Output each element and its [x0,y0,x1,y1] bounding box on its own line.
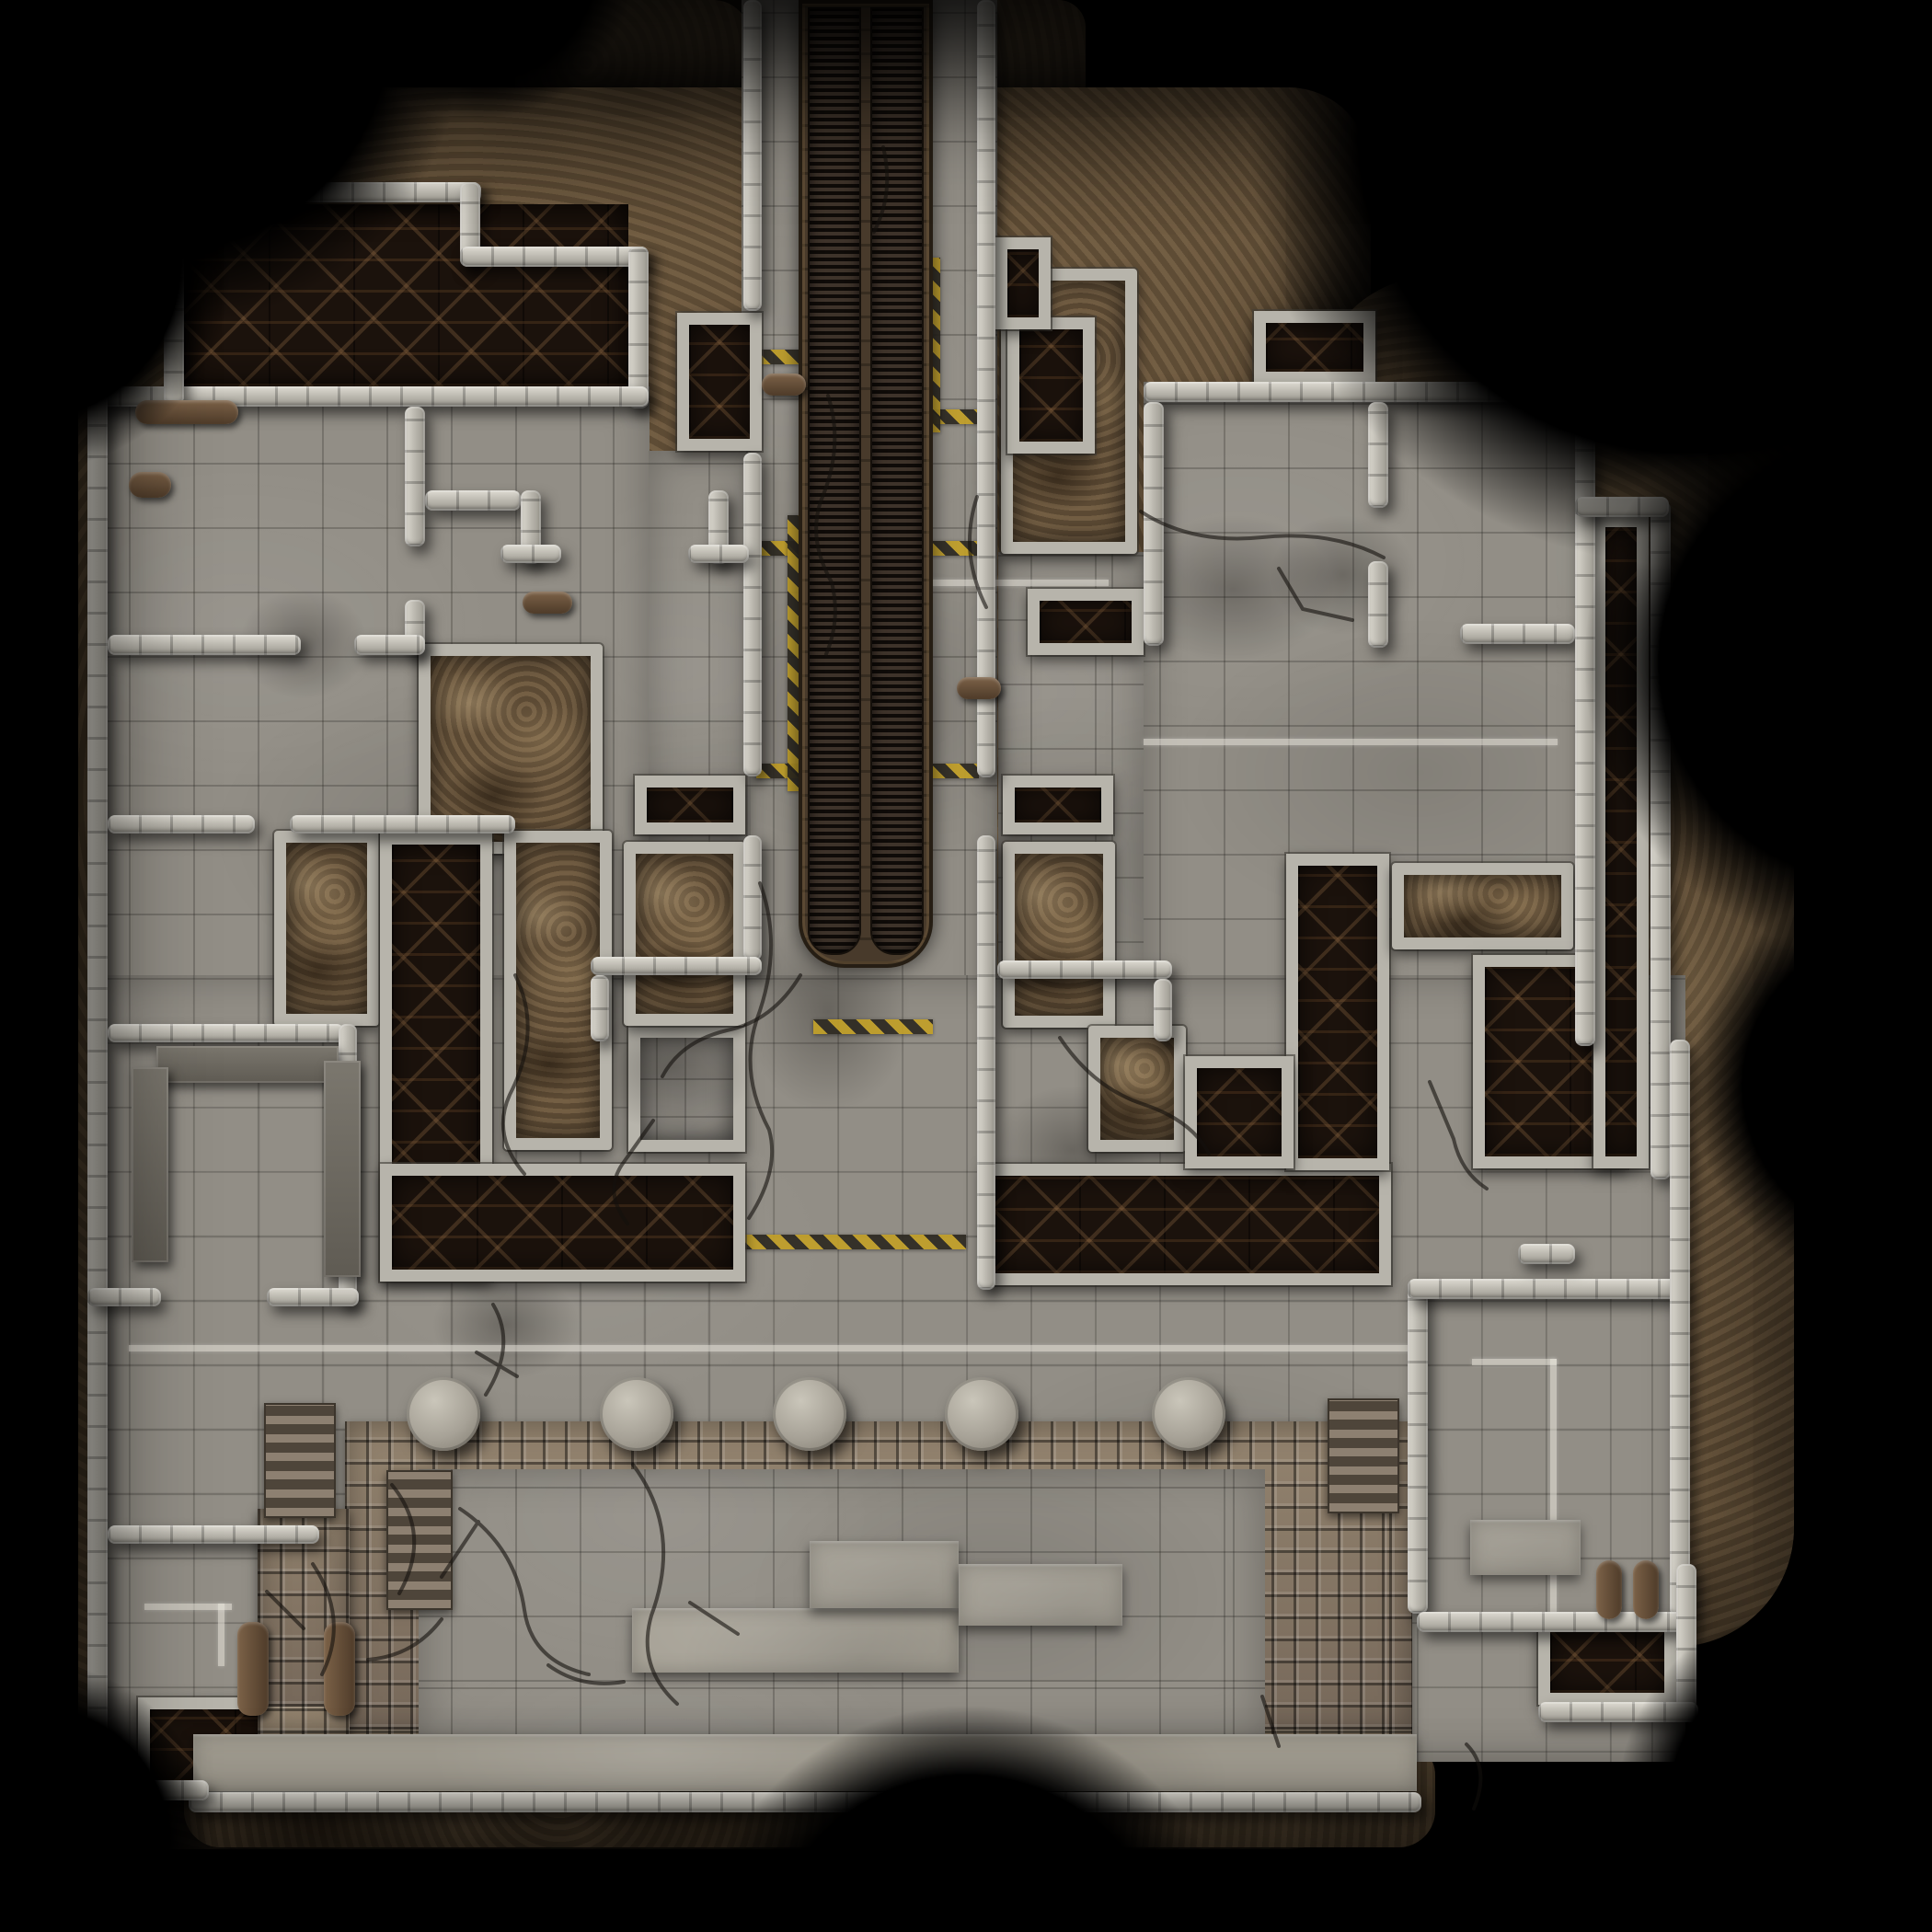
pipe [324,1622,355,1716]
metal-wall [164,182,481,202]
pillar [407,1377,480,1451]
catwalk-platform [1028,589,1144,655]
rock-pocket [274,831,379,1026]
metal-wall [591,957,762,975]
metal-wall [290,815,515,834]
pipe [135,400,238,424]
rock-pocket [1003,842,1115,1028]
painted-line [1472,1359,1557,1365]
metal-wall [405,407,425,546]
stairs [264,1403,336,1518]
metal-wall [108,635,301,655]
pillar [945,1377,1018,1451]
catwalk-platform [1254,311,1375,384]
floor-stain [432,1270,580,1380]
metal-wall [1144,402,1164,646]
metal-wall [1676,1564,1696,1713]
hazard-stripe [756,350,800,364]
painted-line [218,1604,224,1666]
hazard-stripe [931,764,979,778]
rock-pocket [624,842,745,1026]
metal-wall [1154,979,1172,1041]
metal-wall [108,815,255,834]
metal-wall [743,0,762,311]
metal-wall [1538,1702,1698,1722]
pipe [1633,1560,1659,1619]
counter-slab [324,1061,361,1277]
center-step-slab [959,1564,1122,1626]
catwalk-platform [1286,854,1389,1170]
pipe [957,677,1001,699]
metal-wall [628,247,649,408]
metal-wall [87,386,108,1803]
bench-slab [1470,1520,1581,1575]
right-edge-catwalk-strip [1593,515,1649,1168]
catwalk-platform [983,1164,1391,1285]
pipe [1596,1560,1622,1619]
counter-slab [132,1067,168,1262]
metal-wall [460,247,649,267]
metal-wall [591,975,609,1041]
metal-wall [1368,561,1388,648]
track-rail [870,7,924,955]
metal-wall [743,453,762,776]
catwalk-platform [1003,776,1113,834]
metal-wall [1460,624,1575,644]
catwalk-platform [677,313,762,451]
catwalk-platform [380,1164,745,1282]
metal-wall [743,835,762,960]
rock-pocket [1392,863,1573,949]
metal-wall [1575,377,1595,1046]
metal-wall [688,545,749,563]
metal-wall [87,1288,161,1306]
metal-wall [500,545,561,563]
metal-wall [164,182,184,405]
metal-wall [1408,1279,1685,1299]
metal-wall [108,1525,319,1544]
metal-wall [977,0,995,777]
metal-wall [1408,1279,1428,1614]
metal-wall [1670,1040,1690,1616]
metal-wall [1650,501,1671,1179]
metal-wall [87,1780,209,1800]
rock-pocket [1088,1026,1186,1152]
painted-line [1144,739,1558,745]
pillar [1152,1377,1225,1451]
floor-stain [1270,515,1417,635]
pillar [773,1377,846,1451]
retaining-curb [193,1734,1417,1791]
upper-left-catwalk-platform [184,204,628,386]
battlemap [0,0,1932,1932]
catwalk-platform [635,776,745,834]
pipe [762,374,806,396]
hazard-stripe [931,541,979,556]
stairs [386,1470,453,1610]
metal-wall [1518,1244,1575,1264]
center-step-slab [810,1541,959,1608]
metal-wall [354,635,425,655]
metal-wall [1575,497,1669,517]
catwalk-platform [995,237,1051,329]
pipe [523,592,572,614]
metal-wall [997,960,1172,979]
catwalk-platform [1007,317,1095,454]
pillar [600,1377,673,1451]
hazard-stripe [813,1019,933,1034]
metal-wall [1144,382,1576,402]
catwalk-platform [1185,1056,1294,1168]
metal-wall [267,1288,359,1306]
pipe [237,1622,269,1716]
metal-wall [1368,402,1388,508]
center-step-slab [632,1608,959,1673]
metal-wall [425,490,521,511]
painted-line [129,1345,1409,1351]
stairs [1328,1398,1399,1513]
pipe [129,472,171,498]
metal-wall [189,1792,1421,1812]
metal-wall [977,835,995,1290]
metal-wall [108,1024,344,1042]
track-rail [808,7,861,955]
counter-slab [156,1046,339,1083]
